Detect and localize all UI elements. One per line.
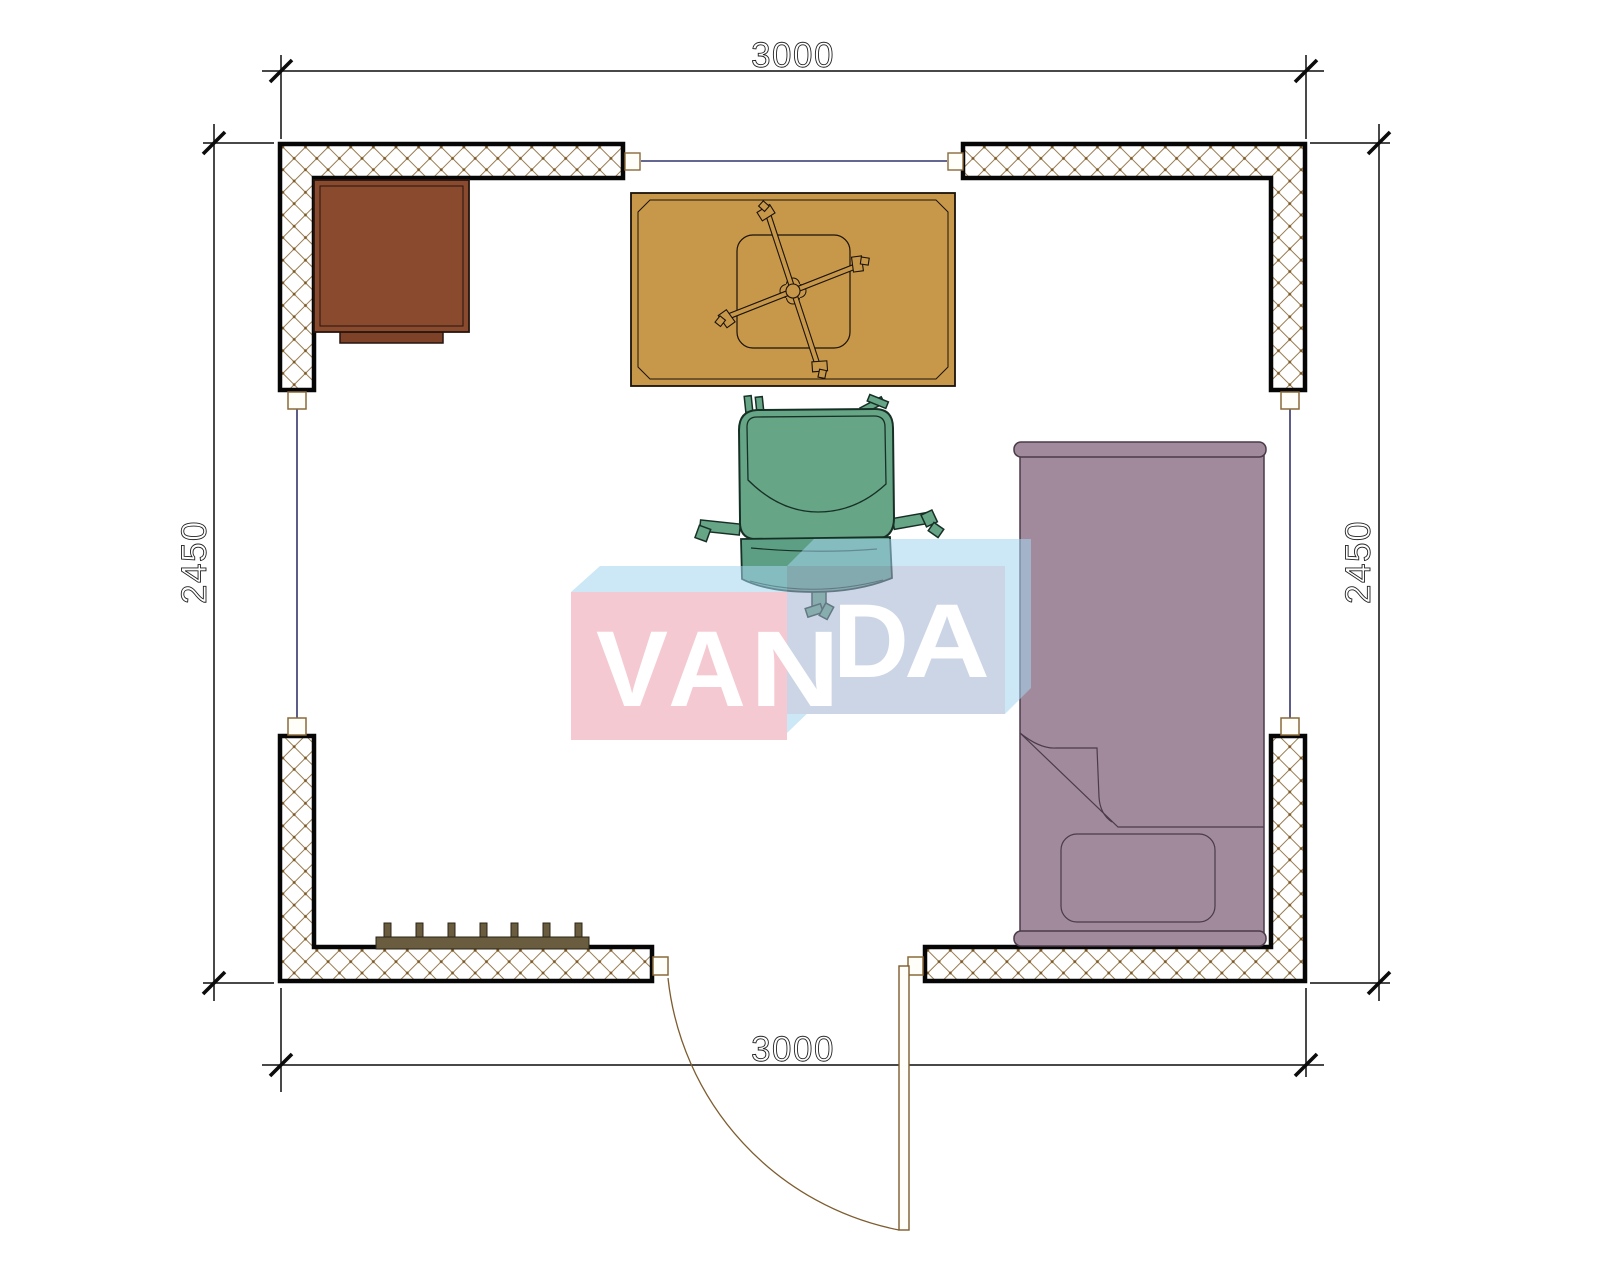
svg-text:N: N <box>750 608 840 729</box>
svg-text:V: V <box>596 608 668 729</box>
svg-text:D: D <box>833 583 909 700</box>
svg-text:3000: 3000 <box>751 1030 835 1069</box>
svg-text:2450: 2450 <box>175 520 214 604</box>
svg-text:A: A <box>668 608 746 729</box>
svg-text:3000: 3000 <box>751 36 835 75</box>
svg-text:2450: 2450 <box>1339 520 1378 604</box>
svg-text:A: A <box>904 583 990 700</box>
